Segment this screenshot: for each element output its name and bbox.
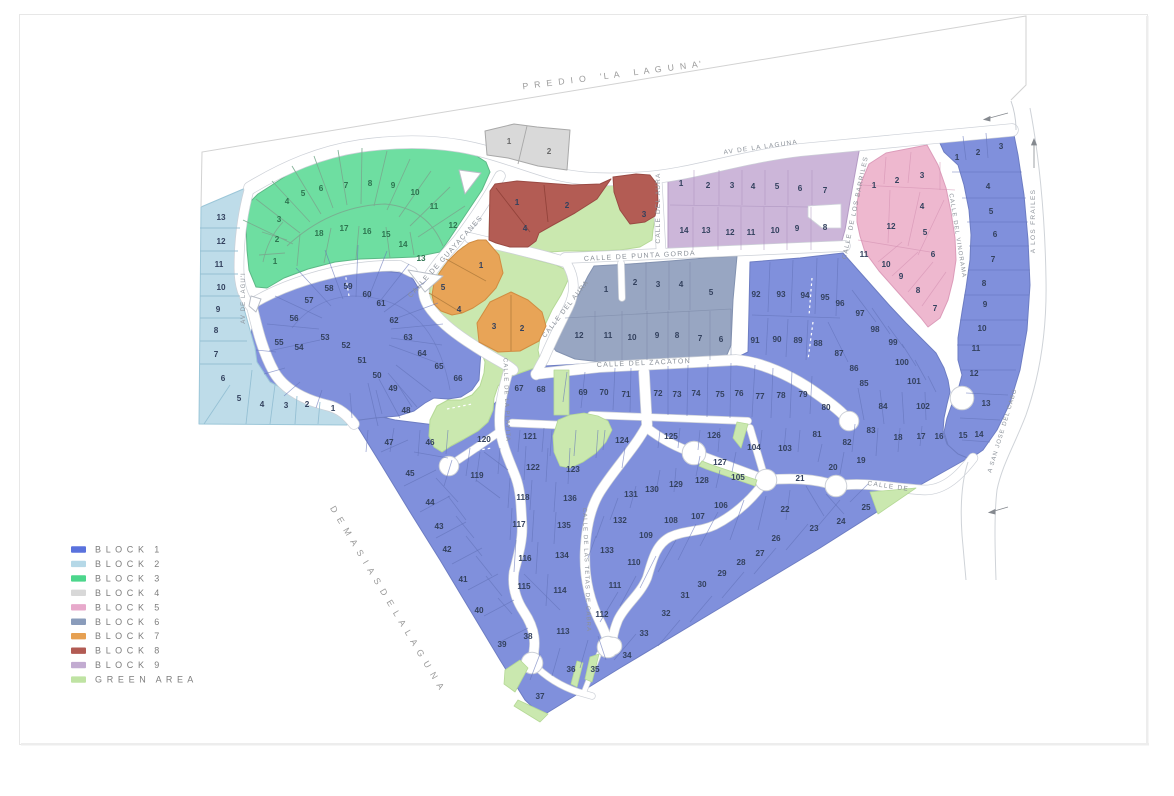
svg-text:12: 12 (886, 222, 896, 231)
svg-text:88: 88 (813, 339, 823, 348)
svg-text:14: 14 (398, 240, 408, 249)
svg-text:14: 14 (679, 226, 689, 235)
svg-text:1: 1 (331, 404, 336, 413)
svg-text:95: 95 (820, 293, 830, 302)
svg-text:111: 111 (609, 581, 622, 590)
svg-text:41: 41 (458, 575, 468, 584)
svg-text:49: 49 (388, 384, 398, 393)
svg-text:82: 82 (842, 438, 852, 447)
svg-text:69: 69 (578, 388, 588, 397)
svg-text:53: 53 (320, 333, 330, 342)
svg-text:8: 8 (916, 286, 921, 295)
svg-text:14: 14 (974, 430, 984, 439)
svg-text:132: 132 (613, 516, 627, 525)
svg-text:17: 17 (916, 432, 926, 441)
svg-text:136: 136 (563, 494, 577, 503)
svg-text:71: 71 (621, 390, 631, 399)
svg-text:1: 1 (604, 285, 609, 294)
svg-text:45: 45 (405, 469, 415, 478)
svg-text:3: 3 (999, 142, 1004, 151)
svg-text:3: 3 (730, 181, 735, 190)
svg-text:79: 79 (798, 390, 808, 399)
svg-text:4: 4 (920, 202, 925, 211)
svg-text:110: 110 (627, 558, 641, 567)
svg-text:20: 20 (828, 463, 838, 472)
svg-text:A LOS FRAILES: A LOS FRAILES (1030, 189, 1037, 254)
svg-text:21: 21 (795, 474, 805, 483)
svg-text:34: 34 (622, 651, 632, 660)
svg-text:17: 17 (339, 224, 349, 233)
svg-text:5: 5 (923, 228, 928, 237)
svg-text:18: 18 (893, 433, 903, 442)
svg-text:27: 27 (755, 549, 765, 558)
svg-text:122: 122 (526, 463, 540, 472)
svg-text:31: 31 (680, 591, 690, 600)
svg-text:35: 35 (590, 665, 600, 674)
svg-text:85: 85 (859, 379, 869, 388)
svg-text:25: 25 (861, 503, 871, 512)
svg-text:2: 2 (305, 400, 310, 409)
svg-text:6: 6 (319, 184, 324, 193)
svg-text:11: 11 (747, 228, 756, 237)
svg-text:128: 128 (695, 476, 709, 485)
svg-text:18: 18 (314, 229, 324, 238)
svg-text:4: 4 (986, 182, 991, 191)
svg-text:4: 4 (751, 182, 756, 191)
svg-text:93: 93 (776, 290, 786, 299)
svg-text:73: 73 (672, 390, 682, 399)
svg-text:123: 123 (566, 465, 580, 474)
svg-text:72: 72 (653, 389, 663, 398)
svg-text:5: 5 (775, 182, 780, 191)
svg-text:4: 4 (523, 224, 528, 233)
svg-text:11: 11 (972, 344, 981, 353)
svg-text:5: 5 (301, 189, 306, 198)
svg-text:107: 107 (691, 512, 705, 521)
svg-text:12: 12 (574, 331, 584, 340)
svg-text:4: 4 (260, 400, 265, 409)
svg-text:2: 2 (520, 324, 525, 333)
svg-text:77: 77 (755, 392, 765, 401)
svg-text:52: 52 (341, 341, 351, 350)
svg-text:89: 89 (793, 336, 803, 345)
svg-text:7: 7 (214, 350, 219, 359)
svg-text:B L O C K 1: B L O C K 1 (95, 545, 160, 555)
svg-text:99: 99 (888, 338, 898, 347)
svg-text:5: 5 (709, 288, 714, 297)
svg-text:B L O C K 5: B L O C K 5 (95, 602, 160, 612)
svg-text:CALLE DEL AURA: CALLE DEL AURA (655, 172, 662, 243)
svg-text:7: 7 (823, 186, 828, 195)
svg-text:10: 10 (881, 260, 891, 269)
svg-text:B L O C K 2: B L O C K 2 (95, 559, 160, 569)
svg-text:15: 15 (381, 230, 391, 239)
svg-text:133: 133 (600, 546, 614, 555)
svg-text:58: 58 (324, 284, 334, 293)
svg-text:AV DE LAGU'I: AV DE LAGU'I (241, 272, 247, 324)
svg-text:103: 103 (778, 444, 792, 453)
svg-text:B L O C K 8: B L O C K 8 (95, 646, 160, 656)
svg-text:1: 1 (273, 257, 278, 266)
svg-text:3: 3 (277, 215, 282, 224)
svg-text:10: 10 (770, 226, 780, 235)
svg-text:3: 3 (642, 210, 647, 219)
svg-text:7: 7 (933, 304, 938, 313)
svg-text:92: 92 (751, 290, 761, 299)
svg-text:50: 50 (372, 371, 382, 380)
svg-text:66: 66 (453, 374, 463, 383)
svg-text:2: 2 (633, 278, 638, 287)
svg-text:68: 68 (536, 385, 546, 394)
svg-text:134: 134 (555, 551, 569, 560)
svg-text:65: 65 (434, 362, 444, 371)
svg-text:120: 120 (477, 435, 491, 444)
svg-text:44: 44 (425, 498, 435, 507)
svg-text:11: 11 (860, 250, 869, 259)
svg-text:19: 19 (856, 456, 866, 465)
svg-text:11: 11 (215, 260, 224, 269)
svg-text:63: 63 (403, 333, 413, 342)
svg-text:B L O C K 4: B L O C K 4 (95, 588, 160, 598)
svg-text:91: 91 (750, 336, 760, 345)
svg-text:47: 47 (384, 438, 394, 447)
svg-text:10: 10 (627, 333, 637, 342)
svg-text:39: 39 (497, 640, 507, 649)
svg-text:B L O C K 9: B L O C K 9 (95, 660, 160, 670)
svg-text:13: 13 (216, 213, 226, 222)
svg-text:16: 16 (934, 432, 944, 441)
svg-text:5: 5 (989, 207, 994, 216)
svg-text:101: 101 (907, 377, 921, 386)
svg-text:117: 117 (512, 520, 526, 529)
svg-text:78: 78 (776, 391, 786, 400)
svg-text:131: 131 (624, 490, 638, 499)
svg-text:4: 4 (285, 197, 290, 206)
svg-text:22: 22 (780, 505, 790, 514)
svg-text:57: 57 (304, 296, 314, 305)
svg-text:9: 9 (983, 300, 988, 309)
svg-text:43: 43 (434, 522, 444, 531)
svg-text:24: 24 (836, 517, 846, 526)
svg-text:64: 64 (417, 349, 427, 358)
svg-text:60: 60 (362, 290, 372, 299)
svg-text:48: 48 (401, 406, 411, 415)
svg-text:62: 62 (389, 316, 399, 325)
svg-text:2: 2 (547, 147, 552, 156)
svg-text:9: 9 (655, 331, 660, 340)
svg-text:40: 40 (474, 606, 484, 615)
svg-text:32: 32 (661, 609, 671, 618)
svg-text:7: 7 (698, 334, 703, 343)
svg-text:87: 87 (834, 349, 844, 358)
svg-text:9: 9 (899, 272, 904, 281)
svg-text:1: 1 (955, 153, 960, 162)
svg-text:84: 84 (878, 402, 888, 411)
svg-text:10: 10 (977, 324, 987, 333)
svg-text:54: 54 (294, 343, 304, 352)
svg-text:109: 109 (639, 531, 653, 540)
svg-text:104: 104 (747, 443, 761, 452)
svg-text:102: 102 (916, 402, 930, 411)
svg-text:3: 3 (656, 280, 661, 289)
svg-text:10: 10 (410, 188, 420, 197)
svg-text:3: 3 (920, 171, 925, 180)
svg-text:29: 29 (717, 569, 727, 578)
svg-text:2: 2 (275, 235, 280, 244)
svg-text:8: 8 (982, 279, 987, 288)
svg-text:8: 8 (214, 326, 219, 335)
svg-text:1: 1 (515, 198, 520, 207)
svg-text:10: 10 (216, 283, 226, 292)
svg-text:125: 125 (664, 432, 678, 441)
svg-text:76: 76 (734, 389, 744, 398)
svg-text:70: 70 (599, 388, 609, 397)
svg-text:28: 28 (736, 558, 746, 567)
svg-text:98: 98 (870, 325, 880, 334)
svg-text:83: 83 (866, 426, 876, 435)
svg-text:118: 118 (516, 493, 530, 502)
svg-text:3: 3 (492, 322, 497, 331)
svg-text:2: 2 (565, 201, 570, 210)
svg-text:7: 7 (344, 181, 349, 190)
svg-text:9: 9 (391, 181, 396, 190)
svg-text:1: 1 (507, 137, 512, 146)
svg-text:15: 15 (958, 431, 968, 440)
svg-text:6: 6 (993, 230, 998, 239)
svg-text:6: 6 (719, 335, 724, 344)
svg-text:96: 96 (835, 299, 845, 308)
svg-text:55: 55 (274, 338, 284, 347)
svg-text:9: 9 (216, 305, 221, 314)
svg-text:2: 2 (706, 181, 711, 190)
svg-text:13: 13 (701, 226, 711, 235)
svg-text:B L O C K 6: B L O C K 6 (95, 617, 160, 627)
svg-text:114: 114 (553, 586, 567, 595)
svg-text:90: 90 (772, 335, 782, 344)
svg-text:86: 86 (849, 364, 859, 373)
svg-text:12: 12 (448, 221, 458, 230)
svg-text:113: 113 (556, 627, 570, 636)
svg-text:G R E E N A R E A: G R E E N A R E A (95, 675, 194, 685)
svg-text:8: 8 (675, 331, 680, 340)
svg-text:81: 81 (812, 430, 822, 439)
svg-text:1: 1 (479, 261, 484, 270)
svg-text:130: 130 (645, 485, 659, 494)
svg-text:75: 75 (715, 390, 725, 399)
svg-text:11: 11 (430, 202, 439, 211)
svg-text:5: 5 (237, 394, 242, 403)
svg-text:4: 4 (457, 305, 462, 314)
svg-text:2: 2 (895, 176, 900, 185)
svg-text:1: 1 (872, 181, 877, 190)
svg-text:119: 119 (470, 471, 484, 480)
svg-text:135: 135 (557, 521, 571, 530)
svg-text:6: 6 (931, 250, 936, 259)
svg-text:36: 36 (566, 665, 576, 674)
svg-text:7: 7 (991, 255, 996, 264)
svg-text:80: 80 (821, 403, 831, 412)
svg-text:94: 94 (800, 291, 810, 300)
svg-text:13: 13 (981, 399, 991, 408)
svg-text:8: 8 (823, 223, 828, 232)
svg-text:12: 12 (216, 237, 226, 246)
svg-text:115: 115 (517, 582, 531, 591)
svg-text:124: 124 (615, 436, 629, 445)
svg-text:6: 6 (798, 184, 803, 193)
svg-text:1: 1 (679, 179, 684, 188)
svg-text:116: 116 (518, 554, 532, 563)
svg-text:61: 61 (376, 299, 386, 308)
svg-text:126: 126 (707, 431, 721, 440)
svg-text:B L O C K 3: B L O C K 3 (95, 573, 160, 583)
svg-text:129: 129 (669, 480, 683, 489)
svg-text:5: 5 (441, 283, 446, 292)
svg-text:100: 100 (895, 358, 909, 367)
svg-text:42: 42 (442, 545, 452, 554)
svg-text:74: 74 (691, 389, 701, 398)
svg-text:11: 11 (604, 331, 613, 340)
svg-text:105: 105 (731, 473, 745, 482)
svg-text:56: 56 (289, 314, 299, 323)
svg-text:67: 67 (514, 384, 524, 393)
svg-text:4: 4 (679, 280, 684, 289)
svg-text:127: 127 (713, 458, 727, 467)
svg-text:26: 26 (771, 534, 781, 543)
svg-text:12: 12 (969, 369, 979, 378)
svg-text:108: 108 (664, 516, 678, 525)
svg-text:13: 13 (416, 254, 426, 263)
svg-text:B L O C K 7: B L O C K 7 (95, 631, 160, 641)
svg-text:97: 97 (855, 309, 865, 318)
svg-text:30: 30 (697, 580, 707, 589)
svg-text:46: 46 (425, 438, 435, 447)
svg-text:37: 37 (535, 692, 545, 701)
svg-text:51: 51 (357, 356, 367, 365)
svg-text:16: 16 (362, 227, 372, 236)
svg-text:8: 8 (368, 179, 373, 188)
svg-text:106: 106 (714, 501, 728, 510)
svg-text:3: 3 (284, 401, 289, 410)
svg-text:33: 33 (639, 629, 649, 638)
svg-text:38: 38 (523, 632, 533, 641)
svg-text:12: 12 (725, 228, 735, 237)
svg-text:23: 23 (809, 524, 819, 533)
svg-text:121: 121 (523, 432, 537, 441)
svg-text:6: 6 (221, 374, 226, 383)
svg-text:112: 112 (595, 610, 609, 619)
svg-text:9: 9 (795, 224, 800, 233)
svg-text:2: 2 (976, 148, 981, 157)
